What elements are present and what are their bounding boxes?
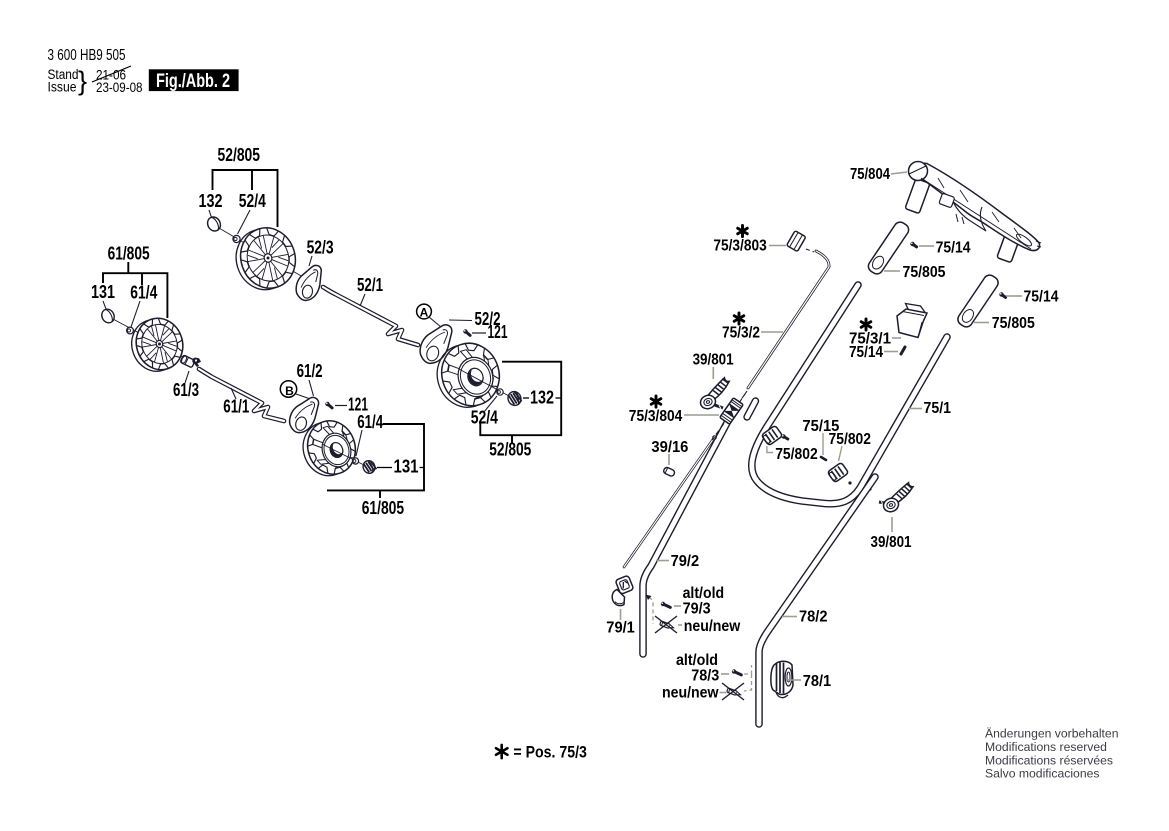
svg-text:61/805: 61/805 <box>108 244 150 264</box>
svg-text:75/1: 75/1 <box>924 400 952 417</box>
svg-text:39/801: 39/801 <box>693 352 734 369</box>
svg-text:75/3/2: 75/3/2 <box>722 325 760 342</box>
svg-text:39/16: 39/16 <box>651 439 688 456</box>
svg-text:52/805: 52/805 <box>218 145 261 165</box>
svg-text:132: 132 <box>199 191 223 211</box>
svg-text:23-09-08: 23-09-08 <box>96 80 143 95</box>
svg-text:132: 132 <box>530 388 554 408</box>
svg-text:79/1: 79/1 <box>606 620 635 637</box>
svg-text:79/3: 79/3 <box>683 601 711 618</box>
svg-text:39/801: 39/801 <box>871 534 912 551</box>
svg-text:B: B <box>285 384 294 398</box>
svg-text:neu/new: neu/new <box>662 685 719 702</box>
svg-text:75/14: 75/14 <box>936 240 971 257</box>
svg-text:Modifications réservées: Modifications réservées <box>985 753 1113 767</box>
svg-text:= Pos. 75/3: = Pos. 75/3 <box>513 743 587 762</box>
svg-text:3 600 HB9 505: 3 600 HB9 505 <box>48 47 126 64</box>
svg-text:79/2: 79/2 <box>671 553 700 570</box>
svg-text:A: A <box>420 306 429 320</box>
svg-text:131: 131 <box>91 282 115 302</box>
svg-text:78/3: 78/3 <box>691 668 719 685</box>
svg-text:52/1: 52/1 <box>357 275 383 295</box>
svg-text:61/805: 61/805 <box>362 498 404 518</box>
svg-text:75/805: 75/805 <box>903 264 946 281</box>
svg-text:52/3: 52/3 <box>307 238 334 258</box>
svg-text:61/2: 61/2 <box>297 361 323 381</box>
svg-text:neu/new: neu/new <box>684 618 741 635</box>
svg-text:75/804: 75/804 <box>850 166 890 183</box>
svg-text:61/4: 61/4 <box>130 283 157 303</box>
svg-text:52/805: 52/805 <box>489 440 531 460</box>
svg-text:52/4: 52/4 <box>239 191 266 211</box>
svg-text:121: 121 <box>488 322 508 342</box>
svg-text:75/802: 75/802 <box>775 446 818 463</box>
svg-text:Fig./Abb. 2: Fig./Abb. 2 <box>156 71 230 92</box>
svg-text:}: } <box>78 66 87 96</box>
svg-text:52/4: 52/4 <box>471 408 498 428</box>
svg-text:78/1: 78/1 <box>803 673 832 690</box>
svg-text:Issue: Issue <box>48 80 77 95</box>
svg-text:75/3/803: 75/3/803 <box>713 238 766 255</box>
svg-text:75/14: 75/14 <box>1024 289 1059 306</box>
svg-text:75/14: 75/14 <box>849 344 883 361</box>
svg-text:61/3: 61/3 <box>173 380 199 400</box>
svg-text:131: 131 <box>394 457 419 477</box>
svg-text:Modifications reserved: Modifications reserved <box>985 740 1107 754</box>
svg-text:alt/old: alt/old <box>676 652 718 669</box>
svg-text:61/1: 61/1 <box>223 397 249 417</box>
svg-text:Änderungen vorbehalten: Änderungen vorbehalten <box>985 727 1119 741</box>
svg-text:78/2: 78/2 <box>799 609 828 626</box>
svg-text:75/802: 75/802 <box>829 431 872 448</box>
svg-text:alt/old: alt/old <box>683 585 725 602</box>
svg-text:Salvo modificaciones: Salvo modificaciones <box>985 767 1099 781</box>
svg-text:75/3/804: 75/3/804 <box>629 408 683 425</box>
svg-text:75/805: 75/805 <box>992 315 1035 332</box>
svg-text:61/4: 61/4 <box>357 412 383 432</box>
